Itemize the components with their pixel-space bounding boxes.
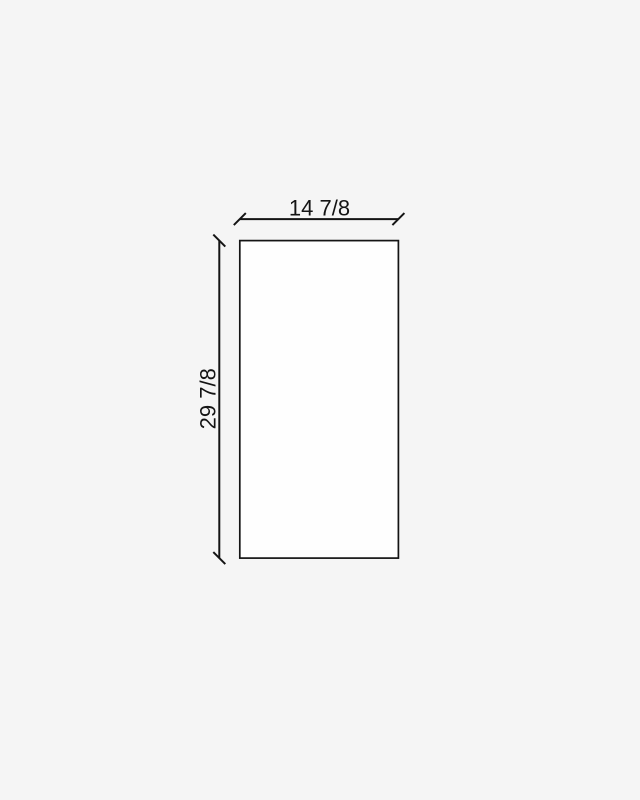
svg-text:29 7/8: 29 7/8: [195, 368, 220, 429]
svg-text:14 7/8: 14 7/8: [289, 195, 350, 220]
